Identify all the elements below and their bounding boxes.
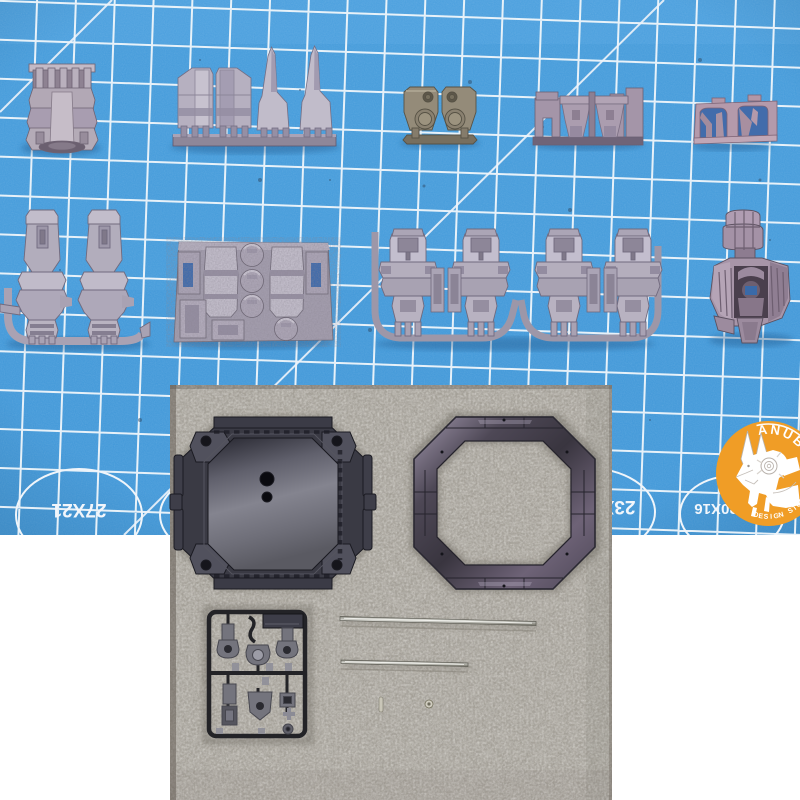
svg-text:S: S bbox=[763, 514, 768, 521]
svg-text:27X21: 27X21 bbox=[51, 499, 106, 520]
